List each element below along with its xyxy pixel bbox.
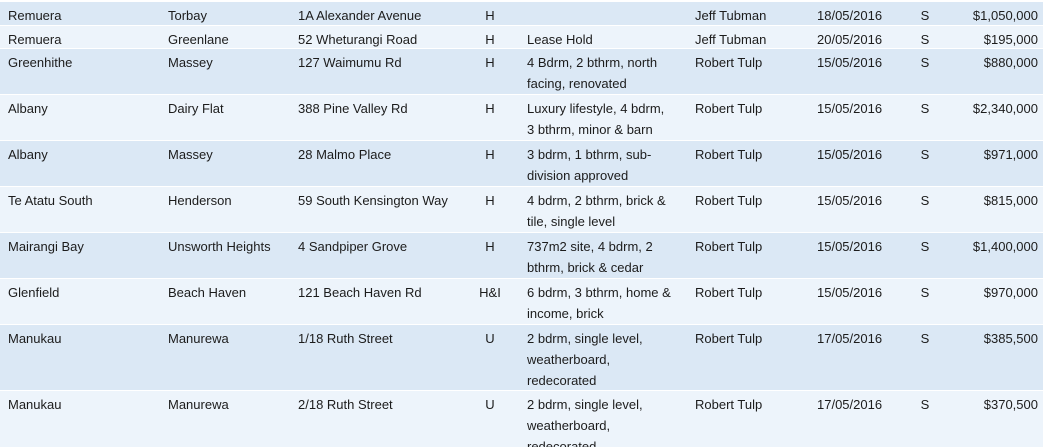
cell-suburb[interactable]: Albany: [0, 95, 160, 119]
cell-type[interactable]: H: [462, 233, 518, 257]
table-row: ManukauManurewa1/18 Ruth StreetU2 bdrm, …: [0, 325, 1043, 391]
table-row: Mairangi BayUnsworth Heights4 Sandpiper …: [0, 233, 1043, 279]
cell-agent[interactable]: Jeff Tubman: [688, 26, 810, 50]
cell-district[interactable]: Henderson: [160, 187, 290, 211]
cell-description[interactable]: 2 bdrm, single level, weatherboard, rede…: [518, 325, 688, 391]
cell-date[interactable]: 15/05/2016: [810, 141, 906, 165]
table-row: ManukauManurewa2/18 Ruth StreetU2 bdrm, …: [0, 391, 1043, 447]
cell-district[interactable]: Massey: [160, 49, 290, 73]
cell-address[interactable]: 52 Wheturangi Road: [290, 26, 462, 50]
table-row: GreenhitheMassey127 Waimumu RdH4 Bdrm, 2…: [0, 49, 1043, 95]
cell-status[interactable]: S: [906, 391, 944, 415]
cell-description[interactable]: 2 bdrm, single level, weatherboard, rede…: [518, 391, 688, 447]
cell-type[interactable]: H: [462, 26, 518, 50]
cell-price[interactable]: $970,000: [944, 279, 1043, 303]
cell-price[interactable]: $385,500: [944, 325, 1043, 349]
cell-suburb[interactable]: Te Atatu South: [0, 187, 160, 211]
cell-agent[interactable]: Jeff Tubman: [688, 2, 810, 26]
cell-type[interactable]: U: [462, 391, 518, 415]
cell-description[interactable]: 4 Bdrm, 2 bthrm, north facing, renovated: [518, 49, 688, 94]
table-row: AlbanyDairy Flat388 Pine Valley RdHLuxur…: [0, 95, 1043, 141]
cell-district[interactable]: Manurewa: [160, 391, 290, 415]
cell-suburb[interactable]: Remuera: [0, 26, 160, 50]
cell-agent[interactable]: Robert Tulp: [688, 141, 810, 165]
cell-district[interactable]: Unsworth Heights: [160, 233, 290, 257]
cell-price[interactable]: $880,000: [944, 49, 1043, 73]
cell-district[interactable]: Manurewa: [160, 325, 290, 349]
cell-agent[interactable]: Robert Tulp: [688, 391, 810, 415]
cell-status[interactable]: S: [906, 141, 944, 165]
cell-price[interactable]: $1,050,000: [944, 2, 1043, 26]
cell-agent[interactable]: Robert Tulp: [688, 187, 810, 211]
cell-district[interactable]: Greenlane: [160, 26, 290, 50]
cell-description[interactable]: 6 bdrm, 3 bthrm, home & income, brick: [518, 279, 688, 324]
cell-date[interactable]: 17/05/2016: [810, 325, 906, 349]
table-row: RemueraGreenlane52 Wheturangi RoadHLease…: [0, 26, 1043, 49]
cell-date[interactable]: 15/05/2016: [810, 95, 906, 119]
cell-description[interactable]: [518, 2, 688, 5]
cell-address[interactable]: 121 Beach Haven Rd: [290, 279, 462, 303]
cell-type[interactable]: H: [462, 2, 518, 26]
cell-address[interactable]: 388 Pine Valley Rd: [290, 95, 462, 119]
cell-address[interactable]: 1A Alexander Avenue: [290, 2, 462, 26]
cell-agent[interactable]: Robert Tulp: [688, 279, 810, 303]
table-row: Te Atatu SouthHenderson59 South Kensingt…: [0, 187, 1043, 233]
cell-price[interactable]: $1,400,000: [944, 233, 1043, 257]
cell-type[interactable]: H: [462, 49, 518, 73]
cell-date[interactable]: 17/05/2016: [810, 391, 906, 415]
cell-address[interactable]: 1/18 Ruth Street: [290, 325, 462, 349]
table-row: RemueraTorbay1A Alexander AvenueHJeff Tu…: [0, 2, 1043, 26]
cell-status[interactable]: S: [906, 95, 944, 119]
cell-date[interactable]: 18/05/2016: [810, 2, 906, 26]
cell-price[interactable]: $370,500: [944, 391, 1043, 415]
cell-suburb[interactable]: Albany: [0, 141, 160, 165]
cell-description[interactable]: 3 bdrm, 1 bthrm, sub-division approved: [518, 141, 688, 186]
cell-agent[interactable]: Robert Tulp: [688, 49, 810, 73]
table-body: RemueraTorbay1A Alexander AvenueHJeff Tu…: [0, 2, 1043, 447]
table-row: AlbanyMassey28 Malmo PlaceH3 bdrm, 1 bth…: [0, 141, 1043, 187]
cell-suburb[interactable]: Remuera: [0, 2, 160, 26]
cell-address[interactable]: 4 Sandpiper Grove: [290, 233, 462, 257]
cell-status[interactable]: S: [906, 49, 944, 73]
cell-district[interactable]: Dairy Flat: [160, 95, 290, 119]
cell-district[interactable]: Beach Haven: [160, 279, 290, 303]
cell-type[interactable]: H: [462, 187, 518, 211]
cell-price[interactable]: $815,000: [944, 187, 1043, 211]
cell-description[interactable]: 4 bdrm, 2 bthrm, brick & tile, single le…: [518, 187, 688, 232]
cell-status[interactable]: S: [906, 233, 944, 257]
cell-description[interactable]: Lease Hold: [518, 26, 688, 50]
property-sales-table: RemueraTorbay1A Alexander AvenueHJeff Tu…: [0, 0, 1043, 447]
cell-district[interactable]: Torbay: [160, 2, 290, 26]
cell-address[interactable]: 28 Malmo Place: [290, 141, 462, 165]
cell-address[interactable]: 59 South Kensington Way: [290, 187, 462, 211]
cell-description[interactable]: Luxury lifestyle, 4 bdrm, 3 bthrm, minor…: [518, 95, 688, 140]
cell-agent[interactable]: Robert Tulp: [688, 95, 810, 119]
cell-date[interactable]: 15/05/2016: [810, 279, 906, 303]
cell-address[interactable]: 127 Waimumu Rd: [290, 49, 462, 73]
cell-price[interactable]: $2,340,000: [944, 95, 1043, 119]
cell-price[interactable]: $195,000: [944, 26, 1043, 50]
cell-suburb[interactable]: Manukau: [0, 325, 160, 349]
cell-status[interactable]: S: [906, 2, 944, 26]
cell-status[interactable]: S: [906, 26, 944, 50]
cell-type[interactable]: H: [462, 141, 518, 165]
cell-date[interactable]: 15/05/2016: [810, 233, 906, 257]
cell-description[interactable]: 737m2 site, 4 bdrm, 2 bthrm, brick & ced…: [518, 233, 688, 278]
cell-suburb[interactable]: Mairangi Bay: [0, 233, 160, 257]
cell-date[interactable]: 20/05/2016: [810, 26, 906, 50]
cell-address[interactable]: 2/18 Ruth Street: [290, 391, 462, 415]
cell-type[interactable]: H: [462, 95, 518, 119]
cell-date[interactable]: 15/05/2016: [810, 187, 906, 211]
cell-status[interactable]: S: [906, 279, 944, 303]
table-row: GlenfieldBeach Haven121 Beach Haven RdH&…: [0, 279, 1043, 325]
cell-status[interactable]: S: [906, 187, 944, 211]
cell-agent[interactable]: Robert Tulp: [688, 233, 810, 257]
cell-price[interactable]: $971,000: [944, 141, 1043, 165]
cell-suburb[interactable]: Greenhithe: [0, 49, 160, 73]
cell-agent[interactable]: Robert Tulp: [688, 325, 810, 349]
cell-suburb[interactable]: Glenfield: [0, 279, 160, 303]
cell-district[interactable]: Massey: [160, 141, 290, 165]
cell-status[interactable]: S: [906, 325, 944, 349]
cell-date[interactable]: 15/05/2016: [810, 49, 906, 73]
cell-type[interactable]: H&I: [462, 279, 518, 303]
cell-type[interactable]: U: [462, 325, 518, 349]
cell-suburb[interactable]: Manukau: [0, 391, 160, 415]
